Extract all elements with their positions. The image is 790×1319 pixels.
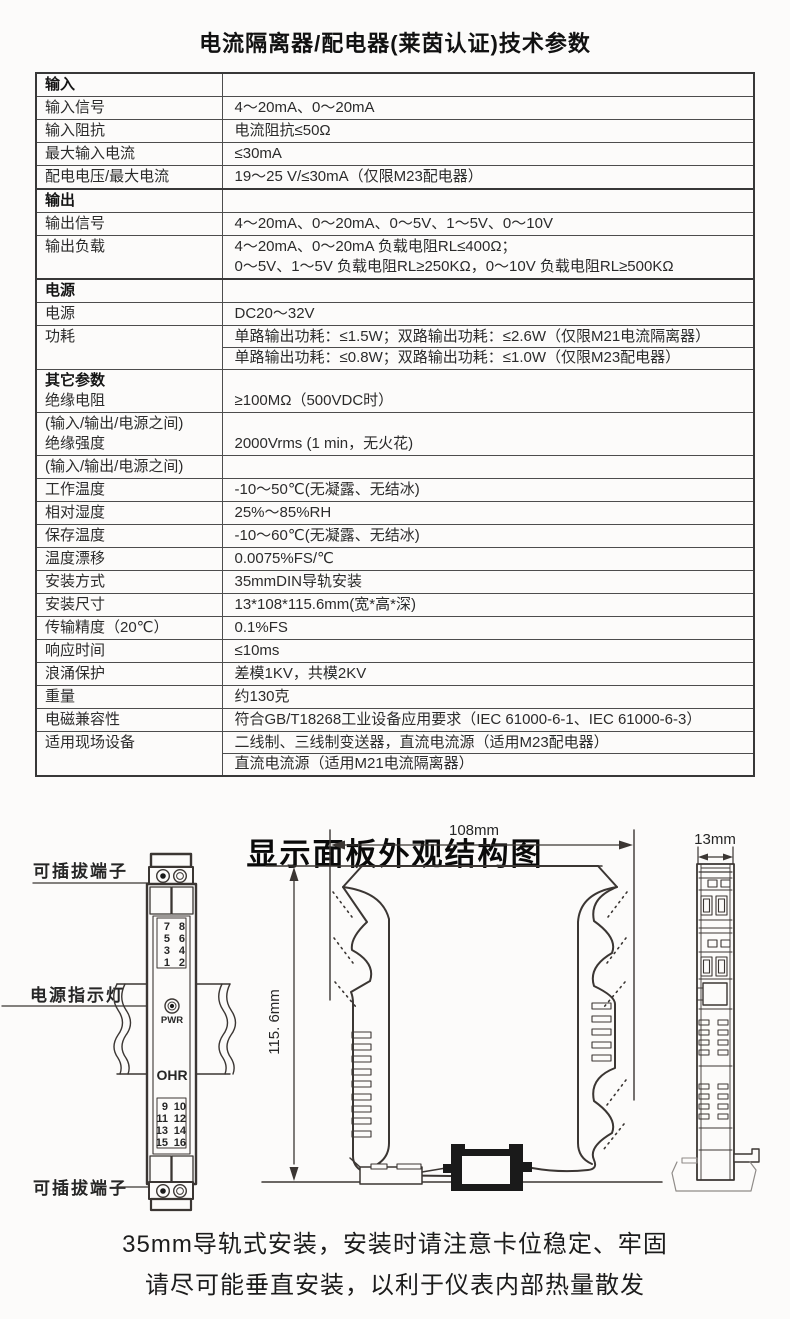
svg-text:6: 6 — [179, 933, 185, 945]
table-row: 最大输入电流≤30mA — [36, 143, 754, 166]
row-label: 安装方式 — [36, 571, 222, 594]
svg-text:4: 4 — [179, 945, 186, 957]
structure-diagram: 可插拔端子 电源指示灯 可插拔端子 — [0, 812, 790, 1214]
row-value: 4～20mA、0～20mA、0～5V、1～5V、0～10V — [222, 213, 754, 236]
row-value: -10～60℃(无凝露、无结冰) — [222, 525, 754, 548]
table-row: 安装方式35mmDIN导轨安装 — [36, 571, 754, 594]
row-value — [222, 279, 754, 303]
row-label: 响应时间 — [36, 640, 222, 663]
row-value: 0.0075%FS/℃ — [222, 548, 754, 571]
row-label: 电源 — [36, 279, 222, 303]
clip-foot — [734, 1149, 759, 1162]
row-value: -10～50℃(无凝露、无结冰) — [222, 479, 754, 502]
table-row: 输入 — [36, 73, 754, 97]
row-value — [222, 73, 754, 97]
svg-text:12: 12 — [174, 1113, 186, 1125]
table-row: 电源 — [36, 279, 754, 303]
row-label: (输入/输出/电源之间) — [36, 456, 222, 479]
hidden-edge-dots — [333, 892, 627, 1149]
brand-logo: OHR — [156, 1067, 187, 1083]
plug-terminal-label-bottom: 可插拔端子 — [33, 1178, 128, 1198]
module-body — [147, 884, 196, 1184]
arrow-right-icon — [619, 841, 633, 850]
row-label: 电源 — [36, 303, 222, 326]
module-outline — [343, 866, 617, 1176]
row-value: 符合GB/T18268工业设备应用要求（IEC 61000-6-1、IEC 61… — [222, 709, 754, 732]
table-row: 浪涌保护差模1KV，共模2KV — [36, 663, 754, 686]
svg-text:2: 2 — [179, 957, 185, 969]
row-value: 电流阻抗≤50Ω — [222, 120, 754, 143]
table-row: 功耗单路输出功耗：≤1.5W；双路输出功耗：≤2.6W（仅限M21电流隔离器）单… — [36, 326, 754, 370]
row-value: DC20～32V — [222, 303, 754, 326]
row-label: 输出负载 — [36, 236, 222, 280]
row-label: 输入阻抗 — [36, 120, 222, 143]
table-row: 电磁兼容性符合GB/T18268工业设备应用要求（IEC 61000-6-1、I… — [36, 709, 754, 732]
svg-text:11: 11 — [156, 1113, 168, 1125]
arrow-right-icon — [723, 854, 733, 861]
table-row: 输入信号4～20mA、0～20mA — [36, 97, 754, 120]
table-row: 输入阻抗电流阻抗≤50Ω — [36, 120, 754, 143]
depth-dimension-label: 13mm — [694, 831, 736, 848]
row-value: 二线制、三线制变送器，直流电流源（适用M23配电器）直流电流源（适用M21电流隔… — [222, 732, 754, 777]
table-row: 重量约130克 — [36, 686, 754, 709]
top-cap — [151, 854, 191, 867]
row-label: 功耗 — [36, 326, 222, 370]
table-row: 温度漂移0.0075%FS/℃ — [36, 548, 754, 571]
row-label: 浪涌保护 — [36, 663, 222, 686]
row-value: 0.1%FS — [222, 617, 754, 640]
install-note-line2: 请尽可能垂直安装，以利于仪表内部热量散发 — [0, 1265, 790, 1306]
row-value: ≥100MΩ（500VDC时） — [222, 370, 754, 413]
power-led-label: 电源指示灯 — [30, 985, 125, 1005]
arrow-up-icon — [290, 867, 299, 881]
svg-text:7: 7 — [164, 921, 170, 933]
row-label: 相对湿度 — [36, 502, 222, 525]
row-label: 保存温度 — [36, 525, 222, 548]
svg-text:8: 8 — [179, 921, 185, 933]
side-view-drawing: 13mm — [672, 831, 759, 1191]
svg-text:1: 1 — [164, 957, 170, 969]
svg-text:9: 9 — [162, 1101, 168, 1113]
row-label: 输入 — [36, 73, 222, 97]
front-view-drawing: 可插拔端子 电源指示灯 可插拔端子 — [2, 854, 236, 1210]
row-value: 约130克 — [222, 686, 754, 709]
width-dimension-label: 108mm — [449, 822, 499, 839]
row-label: 其它参数绝缘电阻 — [36, 370, 222, 413]
vent-slots-left — [352, 1032, 371, 1137]
table-row: 电源DC20～32V — [36, 303, 754, 326]
svg-text:10: 10 — [174, 1101, 186, 1113]
spec-table: 输入输入信号4～20mA、0～20mA输入阻抗电流阻抗≤50Ω最大输入电流≤30… — [35, 72, 755, 777]
row-value — [222, 189, 754, 213]
row-value: 35mmDIN导轨安装 — [222, 571, 754, 594]
table-row: 传输精度（20℃）0.1%FS — [36, 617, 754, 640]
row-value: 差模1KV，共模2KV — [222, 663, 754, 686]
svg-text:15: 15 — [156, 1137, 168, 1149]
row-label: 配电电压/最大电流 — [36, 166, 222, 190]
svg-text:13: 13 — [156, 1125, 168, 1137]
row-value: 25%～85%RH — [222, 502, 754, 525]
row-value: ≤30mA — [222, 143, 754, 166]
table-row: 工作温度-10～50℃(无凝露、无结冰) — [36, 479, 754, 502]
row-label: 输出信号 — [36, 213, 222, 236]
row-label: 适用现场设备 — [36, 732, 222, 777]
svg-text:16: 16 — [174, 1137, 186, 1149]
svg-text:5: 5 — [164, 933, 170, 945]
height-dimension-label: 115. 6mm — [266, 989, 283, 1055]
vent-slots-right — [592, 1003, 611, 1061]
row-label: 工作温度 — [36, 479, 222, 502]
arrow-left-icon — [698, 854, 708, 861]
row-value: 4～20mA、0～20mA 负载电阻RL≤400Ω；0～5V、1～5V 负载电阻… — [222, 236, 754, 280]
bottom-cap — [151, 1199, 191, 1210]
row-value: ≤10ms — [222, 640, 754, 663]
plug-terminal-label-top: 可插拔端子 — [33, 861, 128, 881]
row-value: 19～25 V/≤30mA（仅限M23配电器） — [222, 166, 754, 190]
clip-tab — [682, 1158, 697, 1163]
row-label: 重量 — [36, 686, 222, 709]
rail-latch — [350, 1144, 532, 1191]
table-row: 安装尺寸13*108*115.6mm(宽*高*深) — [36, 594, 754, 617]
row-value: 2000Vrms (1 min，无火花) — [222, 413, 754, 456]
table-row: 配电电压/最大电流19～25 V/≤30mA（仅限M23配电器） — [36, 166, 754, 190]
table-row: (输入/输出/电源之间) — [36, 456, 754, 479]
install-note-line1: 35mm导轨式安装，安装时请注意卡位稳定、牢固 — [0, 1224, 790, 1265]
row-label: 传输精度（20℃） — [36, 617, 222, 640]
row-value — [222, 456, 754, 479]
row-label: 输出 — [36, 189, 222, 213]
row-label: 安装尺寸 — [36, 594, 222, 617]
row-label: 温度漂移 — [36, 548, 222, 571]
spec-table-body: 输入输入信号4～20mA、0～20mA输入阻抗电流阻抗≤50Ω最大输入电流≤30… — [36, 73, 754, 776]
table-row: 输出信号4～20mA、0～20mA、0～5V、1～5V、0～10V — [36, 213, 754, 236]
row-value: 4～20mA、0～20mA — [222, 97, 754, 120]
row-label: (输入/输出/电源之间)绝缘强度 — [36, 413, 222, 456]
install-note: 35mm导轨式安装，安装时请注意卡位稳定、牢固 请尽可能垂直安装，以利于仪表内部… — [0, 1224, 790, 1306]
structure-diagram-svg: 可插拔端子 电源指示灯 可插拔端子 — [0, 812, 790, 1214]
row-label: 电磁兼容性 — [36, 709, 222, 732]
led-text: PWR — [161, 1015, 183, 1026]
table-row: 适用现场设备二线制、三线制变送器，直流电流源（适用M23配电器）直流电流源（适用… — [36, 732, 754, 777]
row-value: 13*108*115.6mm(宽*高*深) — [222, 594, 754, 617]
table-row: 其它参数绝缘电阻≥100MΩ（500VDC时） — [36, 370, 754, 413]
svg-text:14: 14 — [174, 1125, 187, 1137]
top-view-drawing: 108mm 115. 6mm — [262, 822, 662, 1191]
row-label: 最大输入电流 — [36, 143, 222, 166]
row-label: 输入信号 — [36, 97, 222, 120]
arrow-left-icon — [331, 841, 345, 850]
arrow-down-icon — [290, 1167, 299, 1181]
table-row: 响应时间≤10ms — [36, 640, 754, 663]
table-row: (输入/输出/电源之间)绝缘强度2000Vrms (1 min，无火花) — [36, 413, 754, 456]
page-title: 电流隔离器/配电器(莱茵认证)技术参数 — [0, 0, 790, 58]
table-row: 保存温度-10～60℃(无凝露、无结冰) — [36, 525, 754, 548]
table-row: 输出负载4～20mA、0～20mA 负载电阻RL≤400Ω；0～5V、1～5V … — [36, 236, 754, 280]
svg-text:3: 3 — [164, 945, 170, 957]
table-row: 输出 — [36, 189, 754, 213]
table-row: 相对湿度25%～85%RH — [36, 502, 754, 525]
row-value: 单路输出功耗：≤1.5W；双路输出功耗：≤2.6W（仅限M21电流隔离器）单路输… — [222, 326, 754, 370]
